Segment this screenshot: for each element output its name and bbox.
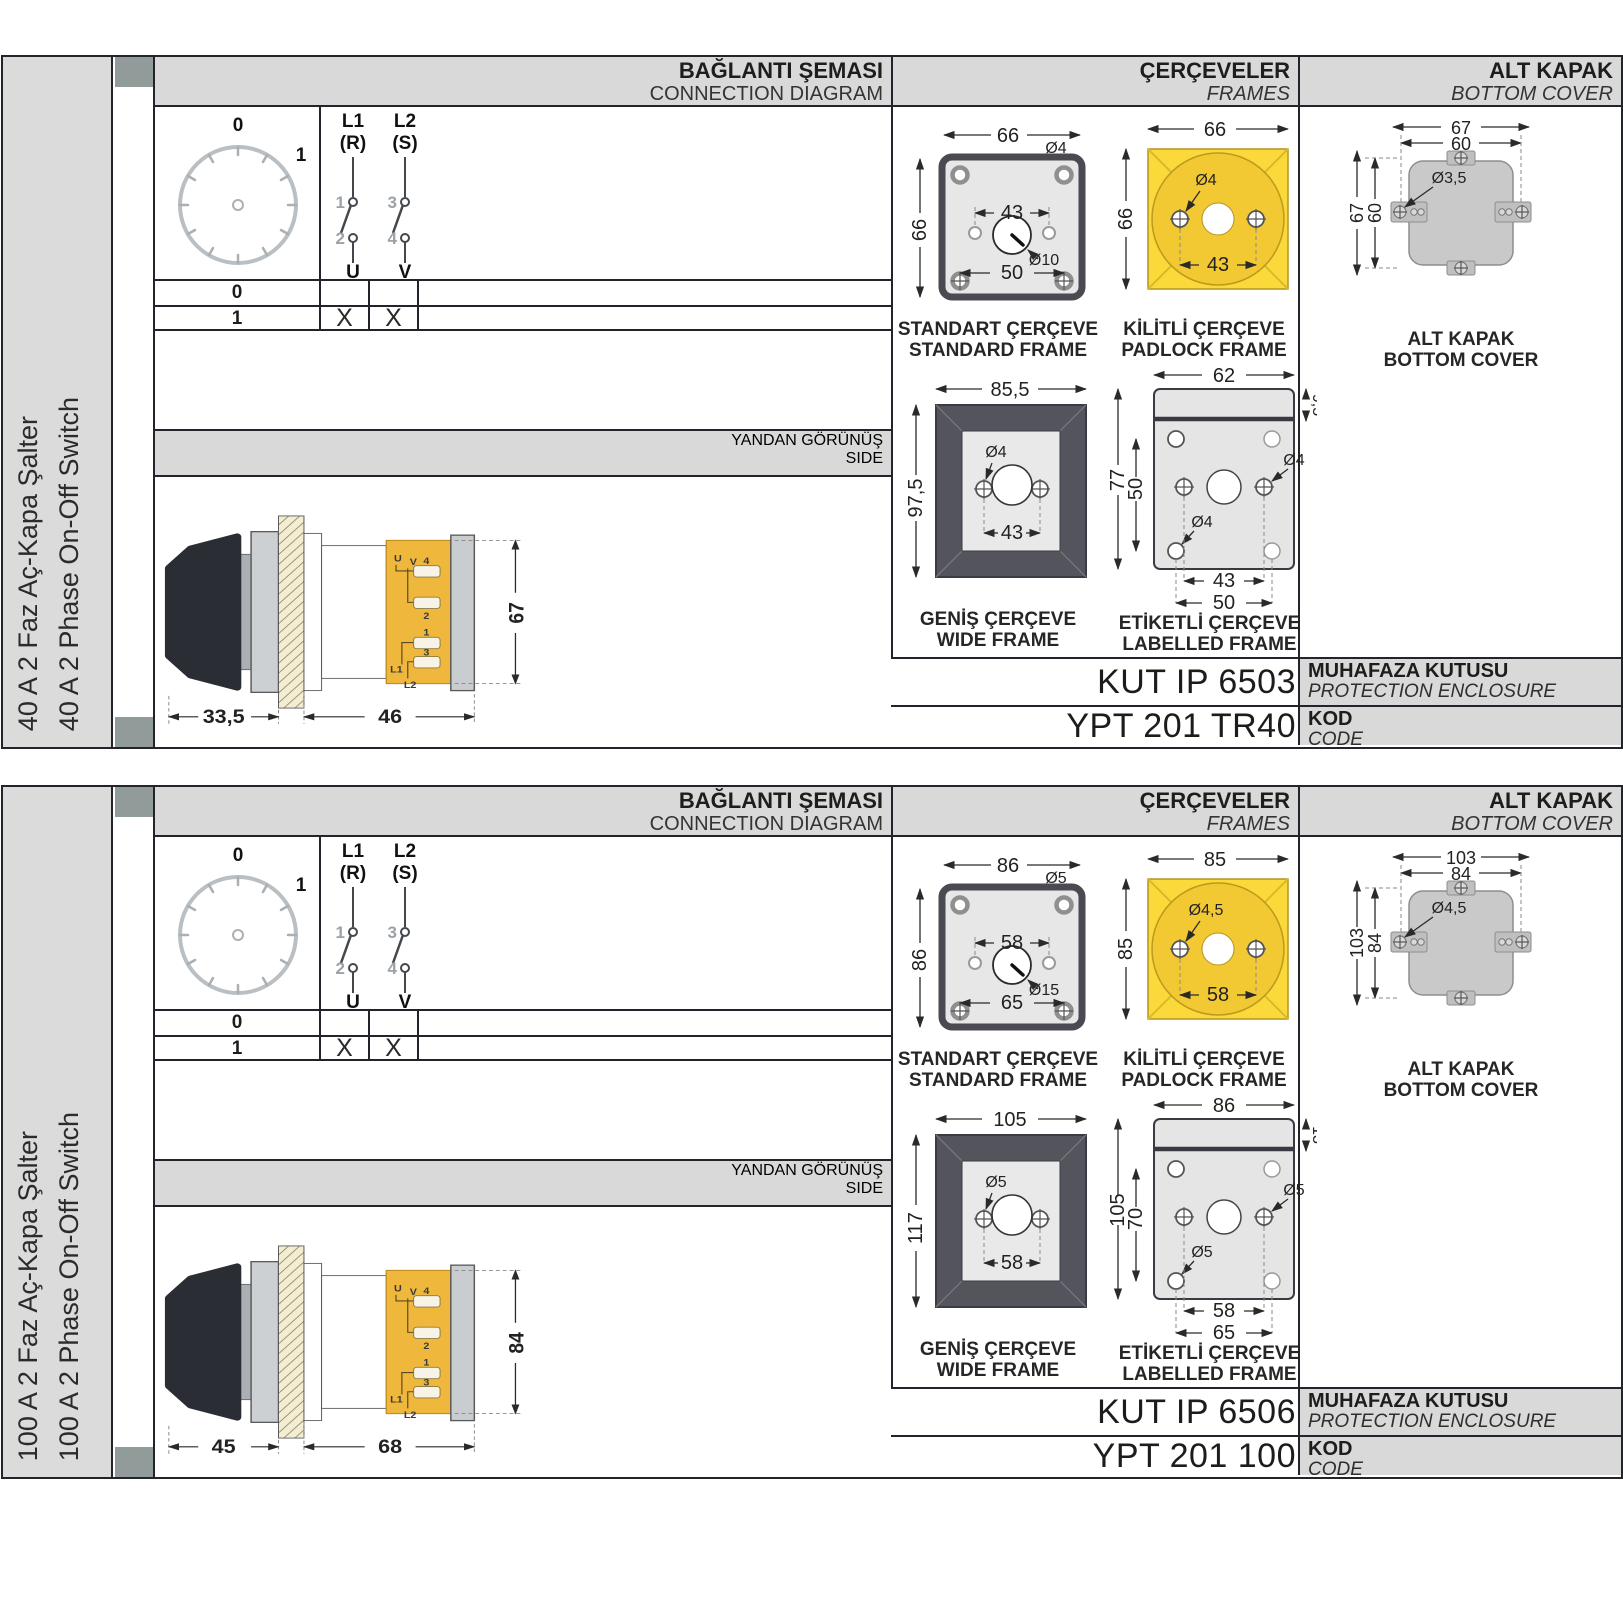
rotary-dial-drawing: 0 1 (155, 837, 319, 1009)
enclosure-label: MUHAFAZA KUTUSU PROTECTION ENCLOSURE (1298, 659, 1621, 705)
pole1-phase-label: (R) (340, 863, 366, 884)
padlock-frame-caption-tr: KİLİTLİ ÇERÇEVE (1102, 1049, 1306, 1070)
product-label-strip: 100 A 2 Faz Aç-Kapa Şalter 100 A 2 Phase… (3, 787, 113, 1477)
padlock-frame-caption-tr: KİLİTLİ ÇERÇEVE (1102, 319, 1306, 340)
switch-body-shapes: U V 4 2 1 3 L1 L2 (169, 1246, 475, 1438)
dim-frame-height: 117 (905, 1212, 927, 1244)
dim-hole: Ø4 (1195, 172, 1216, 189)
handle (169, 537, 238, 687)
spine-column (115, 57, 155, 747)
standard-frame-drawing: 66 Ø4 66 43 Ø10 (896, 113, 1100, 318)
enclosure-label-en: PROTECTION ENCLOSURE (1308, 1412, 1621, 1432)
product-name-turkish: 40 A 2 Faz Aç-Kapa Şalter (15, 416, 42, 731)
labelled-frame-caption-tr: ETİKETLİ ÇERÇEVE (1102, 613, 1317, 634)
dial-position-1: 1 (296, 875, 307, 896)
row-v-mark: X (370, 307, 419, 329)
standard-frame-caption-tr: STANDART ÇERÇEVE (896, 319, 1100, 340)
dim-label-strip: 13 (1309, 1126, 1317, 1144)
header-connection-diagram: BAĞLANTI ŞEMASI CONNECTION DIAGRAM (155, 787, 891, 837)
terminal-label-u: U (394, 554, 402, 564)
dim-body-depth: 68 (378, 1437, 402, 1458)
bottom-cover-drawing: 67 60 67 60 (1341, 117, 1581, 327)
table-row: 0 (155, 279, 891, 305)
catalog-page: 40 A 2 Faz Aç-Kapa Şalter 40 A 2 Phase O… (0, 0, 1623, 1623)
dim-outer-height: 103 (1347, 928, 1367, 958)
standard-frame-caption-en: STANDARD FRAME (896, 340, 1100, 361)
dial-position-0: 0 (233, 845, 244, 866)
dim-outer-spacing: 65 (1213, 1322, 1235, 1343)
switching-table: 0 1 X X (155, 279, 891, 331)
side-view-drawing: U V 4 2 1 3 L1 L2 45 68 84 (161, 1211, 631, 1473)
code-label-tr: KOD (1308, 708, 1621, 730)
row-v-mark: X (370, 1037, 419, 1059)
header-bottom-cover: ALT KAPAK BOTTOM COVER (1298, 57, 1621, 107)
dial-diagram-cell: 0 1 (155, 107, 321, 279)
frame-shape (1154, 389, 1294, 569)
contact-3-label: 3 (388, 193, 397, 212)
terminal-label-v: V (410, 1287, 417, 1297)
header-frames-tr: ÇERÇEVELER (893, 59, 1290, 83)
pole2-line-label: L2 (394, 841, 416, 862)
standard-frame-caption-en: STANDARD FRAME (896, 1070, 1100, 1091)
row-v-mark (370, 1011, 419, 1035)
dial-face (180, 147, 296, 263)
standard-frame-caption: STANDART ÇERÇEVE STANDARD FRAME (896, 319, 1100, 361)
terminal-label-1: 1 (423, 628, 429, 638)
dim-hole: Ø4,5 (1189, 902, 1224, 919)
frame-shape (936, 1135, 1086, 1307)
spine-marker-bottom (115, 1447, 153, 1477)
pole1-phase-label: (R) (340, 133, 366, 154)
header-side-view: YANDAN GÖRÜNÜŞ SIDE (155, 1159, 891, 1207)
header-bottom-cover-tr: ALT KAPAK (1300, 789, 1613, 813)
switch-contacts-cell: L1 (R) L2 (S) 1 2 3 4 U V (321, 107, 891, 279)
bottom-cover-drawing: 103 84 103 84 (1341, 847, 1581, 1057)
switch-body-shapes: U V 4 2 1 3 L1 L2 (169, 516, 475, 708)
divider-connection-frames (891, 107, 893, 657)
header-connection-tr: BAĞLANTI ŞEMASI (155, 59, 883, 83)
terminal-v-label: V (399, 262, 412, 279)
dim-frame-height: 66 (909, 219, 931, 241)
dim-hole: Ø4 (985, 444, 1006, 461)
code-label-tr: KOD (1308, 1438, 1621, 1460)
enclosure-value: KUT IP 6503 (891, 659, 1298, 705)
dim-body-height: 67 (505, 602, 528, 623)
switching-table: 0 1 X X (155, 1009, 891, 1061)
shaft-housing (322, 1276, 387, 1409)
row-position: 0 (155, 281, 321, 305)
bottom-cover-caption: ALT KAPAK BOTTOM COVER (1341, 1059, 1581, 1101)
standard-frame-drawing: 86 Ø5 86 58 Ø15 (896, 843, 1100, 1048)
side-view-drawing: U V 4 2 1 3 L1 L2 33,5 46 67 (161, 481, 631, 743)
dim-inner-height: 70 (1125, 1208, 1147, 1230)
dim-outer-spacing: 65 (1001, 992, 1023, 1014)
rear-plate (451, 535, 475, 690)
wide-frame-caption-en: WIDE FRAME (896, 1360, 1100, 1381)
row-u-mark: X (321, 307, 370, 329)
wide-frame-caption: GENİŞ ÇERÇEVE WIDE FRAME (896, 1339, 1100, 1381)
terminal-label-v: V (410, 557, 417, 567)
dim-outer-height: 67 (1347, 203, 1367, 223)
wide-frame-caption: GENİŞ ÇERÇEVE WIDE FRAME (896, 609, 1100, 651)
dim-frame-width: 62 (1213, 365, 1235, 387)
enclosure-label-tr: MUHAFAZA KUTUSU (1308, 660, 1621, 682)
enclosure-row: KUT IP 6503 MUHAFAZA KUTUSU PROTECTION E… (891, 657, 1621, 705)
terminal-label-2: 2 (423, 1341, 429, 1351)
product-name-turkish: 100 A 2 Faz Aç-Kapa Şalter (15, 1131, 42, 1461)
wide-frame-drawing: 85,5 97,5 Ø4 43 (896, 375, 1100, 610)
pole2-phase-label: (S) (392, 863, 417, 884)
dim-frame-width: 85 (1204, 849, 1226, 871)
terminal-label-2: 2 (423, 611, 429, 621)
bottom-cover-caption-en: BOTTOM COVER (1341, 350, 1581, 371)
dim-body-height: 84 (505, 1332, 528, 1354)
frame-shape (936, 405, 1086, 577)
dim-handle-depth: 33,5 (203, 707, 245, 728)
dial-diagram-cell: 0 1 (155, 837, 321, 1009)
padlock-frame-caption-en: PADLOCK FRAME (1102, 1070, 1306, 1091)
row-v-mark (370, 281, 419, 305)
header-bottom-cover-en: BOTTOM COVER (1300, 83, 1613, 105)
contact-2-label: 2 (336, 959, 345, 978)
header-frames: ÇERÇEVELER FRAMES (891, 57, 1298, 107)
dim-frame-width: 86 (997, 855, 1019, 877)
dim-frame-width: 105 (993, 1109, 1026, 1131)
contact-4-label: 4 (388, 959, 398, 978)
enclosure-value: KUT IP 6506 (891, 1389, 1298, 1435)
dim-hole-left: Ø5 (1191, 1244, 1212, 1261)
bottom-cover-caption-en: BOTTOM COVER (1341, 1080, 1581, 1101)
header-connection-tr: BAĞLANTI ŞEMASI (155, 789, 883, 813)
contact-3-label: 3 (388, 923, 397, 942)
dim-frame-width: 66 (997, 125, 1019, 147)
spine-marker-top (115, 787, 153, 817)
spine-marker-bottom (115, 717, 153, 747)
terminal-label-3: 3 (423, 648, 429, 658)
mounting-panel (279, 516, 304, 708)
handle (169, 1267, 238, 1417)
header-frames-en: FRAMES (893, 813, 1290, 835)
terminal-label-l2: L2 (404, 1410, 417, 1420)
switch-contacts-drawing: L1 (R) L2 (S) 1 2 3 4 U V (321, 107, 891, 279)
dim-hole-spacing: 58 (1001, 932, 1023, 954)
row-u-mark (321, 1011, 370, 1035)
pole1-line-label: L1 (342, 841, 365, 862)
dim-frame-width: 85,5 (991, 379, 1030, 401)
standard-frame-caption: STANDART ÇERÇEVE STANDARD FRAME (896, 1049, 1100, 1091)
divider-connection-frames (891, 837, 893, 1387)
wide-frame-drawing: 105 117 Ø5 58 (896, 1105, 1100, 1340)
contact-1-label: 1 (336, 193, 345, 212)
side-view-title-tr: YANDAN GÖRÜNÜŞ (155, 432, 883, 450)
spacer (304, 1263, 322, 1420)
dial-face (180, 877, 296, 993)
pole2-phase-label: (S) (392, 133, 417, 154)
code-label: KOD CODE (1298, 707, 1621, 745)
enclosure-label-tr: MUHAFAZA KUTUSU (1308, 1390, 1621, 1412)
row-position: 0 (155, 1011, 321, 1035)
dim-hole-right: Ø5 (1283, 1182, 1304, 1199)
dim-inner-height: 60 (1365, 203, 1385, 223)
spine-marker-top (115, 57, 153, 87)
front-plate (251, 1262, 278, 1423)
dim-hole-spacing: 58 (1207, 984, 1229, 1006)
product-label-strip: 40 A 2 Faz Aç-Kapa Şalter 40 A 2 Phase O… (3, 57, 113, 747)
header-connection-en: CONNECTION DIAGRAM (155, 83, 883, 105)
spine-column (115, 787, 155, 1477)
terminal-u-label: U (346, 992, 360, 1009)
code-value: YPT 201 100 (891, 1437, 1298, 1475)
dim-frame-width: 66 (1204, 119, 1226, 141)
dim-hole: Ø4,5 (1432, 900, 1467, 917)
row-u-mark (321, 281, 370, 305)
side-view-title-tr: YANDAN GÖRÜNÜŞ (155, 1162, 883, 1180)
rear-plate (451, 1265, 475, 1420)
padlock-frame-caption: KİLİTLİ ÇERÇEVE PADLOCK FRAME (1102, 319, 1306, 361)
product-section: 40 A 2 Faz Aç-Kapa Şalter 40 A 2 Phase O… (1, 55, 1623, 749)
enclosure-label: MUHAFAZA KUTUSU PROTECTION ENCLOSURE (1298, 1389, 1621, 1435)
spacer (304, 533, 322, 690)
row-position: 1 (155, 307, 321, 329)
dim-outer-spacing: 50 (1213, 592, 1235, 613)
dim-hole: Ø3,5 (1432, 170, 1467, 187)
dim-label-strip: 9,5 (1309, 394, 1317, 416)
code-row: YPT 201 TR40 KOD CODE (891, 705, 1621, 745)
terminal-label-1: 1 (423, 1358, 429, 1368)
header-frames-tr: ÇERÇEVELER (893, 789, 1290, 813)
terminal-label-u: U (394, 1284, 402, 1294)
dim-body-depth: 46 (378, 707, 402, 728)
header-frames: ÇERÇEVELER FRAMES (891, 787, 1298, 837)
mounting-panel (279, 1246, 304, 1438)
product-name-english: 40 A 2 Phase On-Off Switch (56, 397, 83, 731)
dim-hole-spacing: 43 (1001, 202, 1023, 224)
table-row: 1 X X (155, 1035, 891, 1061)
dim-hole-spacing: 43 (1207, 254, 1229, 276)
dim-frame-height: 66 (1115, 208, 1137, 230)
header-connection-en: CONNECTION DIAGRAM (155, 813, 883, 835)
dim-hole-spacing: 43 (1001, 522, 1023, 544)
labelled-frame-caption-en: LABELLED FRAME (1102, 634, 1317, 655)
bottom-cover-caption-tr: ALT KAPAK (1341, 1059, 1581, 1080)
header-bottom-cover-tr: ALT KAPAK (1300, 59, 1613, 83)
padlock-frame-drawing: 85 85 Ø4,5 58 (1102, 843, 1306, 1048)
contact-2-label: 2 (336, 229, 345, 248)
dim-inner-height: 84 (1365, 933, 1385, 953)
header-connection-diagram: BAĞLANTI ŞEMASI CONNECTION DIAGRAM (155, 57, 891, 107)
switch-contacts-drawing: L1 (R) L2 (S) 1 2 3 4 U V (321, 837, 891, 1009)
labelled-frame-caption: ETİKETLİ ÇERÇEVE LABELLED FRAME (1102, 1343, 1317, 1385)
code-row: YPT 201 100 KOD CODE (891, 1435, 1621, 1475)
dim-frame-height: 86 (909, 949, 931, 971)
product-name-english: 100 A 2 Phase On-Off Switch (56, 1112, 83, 1461)
terminal-label-3: 3 (423, 1378, 429, 1388)
table-row: 1 X X (155, 305, 891, 331)
labelled-frame-caption: ETİKETLİ ÇERÇEVE LABELLED FRAME (1102, 613, 1317, 655)
enclosure-label-en: PROTECTION ENCLOSURE (1308, 682, 1621, 702)
dim-hole-right: Ø4 (1283, 452, 1304, 469)
switch-contacts-cell: L1 (R) L2 (S) 1 2 3 4 U V (321, 837, 891, 1009)
row-u-mark: X (321, 1037, 370, 1059)
padlock-frame-caption: KİLİTLİ ÇERÇEVE PADLOCK FRAME (1102, 1049, 1306, 1091)
wide-frame-caption-tr: GENİŞ ÇERÇEVE (896, 1339, 1100, 1360)
header-frames-en: FRAMES (893, 83, 1290, 105)
standard-frame-caption-tr: STANDART ÇERÇEVE (896, 1049, 1100, 1070)
code-label-en: CODE (1308, 1460, 1621, 1480)
dim-outer-spacing: 50 (1001, 262, 1023, 284)
terminal-label-l1: L1 (390, 1395, 403, 1405)
header-bottom-cover-en: BOTTOM COVER (1300, 813, 1613, 835)
wide-frame-caption-en: WIDE FRAME (896, 630, 1100, 651)
dim-hole: Ø5 (985, 1174, 1006, 1191)
row-position: 1 (155, 1037, 321, 1059)
rotary-dial-drawing: 0 1 (155, 107, 319, 279)
contact-4-label: 4 (388, 229, 398, 248)
enclosure-row: KUT IP 6506 MUHAFAZA KUTUSU PROTECTION E… (891, 1387, 1621, 1435)
wide-frame-caption-tr: GENİŞ ÇERÇEVE (896, 609, 1100, 630)
code-label-en: CODE (1308, 730, 1621, 750)
dim-inner-spacing: 43 (1213, 570, 1235, 592)
labelled-frame-caption-tr: ETİKETLİ ÇERÇEVE (1102, 1343, 1317, 1364)
terminal-label-l1: L1 (390, 665, 403, 675)
dim-inner-height: 50 (1125, 478, 1147, 500)
product-section: 100 A 2 Faz Aç-Kapa Şalter 100 A 2 Phase… (1, 785, 1623, 1479)
header-bottom-cover: ALT KAPAK BOTTOM COVER (1298, 787, 1621, 837)
dim-handle-depth: 45 (212, 1437, 236, 1458)
labelled-frame-drawing: 62 9,5 77 50 Ø4 Ø4 (1102, 365, 1317, 613)
terminal-label-4: 4 (423, 556, 429, 566)
dim-hole-spacing: 58 (1001, 1252, 1023, 1274)
dim-frame-height: 85 (1115, 938, 1137, 960)
terminal-label-l2: L2 (404, 680, 417, 690)
dim-frame-width: 86 (1213, 1095, 1235, 1117)
front-plate (251, 532, 278, 693)
terminal-v-label: V (399, 992, 412, 1009)
frame-shape (1154, 1119, 1294, 1299)
code-label: KOD CODE (1298, 1437, 1621, 1475)
pole2-line-label: L2 (394, 111, 416, 132)
table-row: 0 (155, 1009, 891, 1035)
padlock-frame-caption-en: PADLOCK FRAME (1102, 340, 1306, 361)
bottom-cover-caption: ALT KAPAK BOTTOM COVER (1341, 329, 1581, 371)
terminal-u-label: U (346, 262, 360, 279)
dim-hole-left: Ø4 (1191, 514, 1212, 531)
dial-position-1: 1 (296, 145, 307, 166)
code-value: YPT 201 TR40 (891, 707, 1298, 745)
labelled-frame-drawing: 86 13 105 70 Ø5 Ø5 (1102, 1095, 1317, 1343)
dial-position-0: 0 (233, 115, 244, 136)
shaft-housing (322, 546, 387, 679)
terminal-label-4: 4 (423, 1286, 429, 1296)
labelled-frame-caption-en: LABELLED FRAME (1102, 1364, 1317, 1385)
dim-frame-height: 97,5 (905, 479, 927, 518)
padlock-frame-drawing: 66 66 Ø4 43 (1102, 113, 1306, 318)
dim-inner-spacing: 58 (1213, 1300, 1235, 1322)
pole1-line-label: L1 (342, 111, 365, 132)
side-view-title-en: SIDE (155, 1180, 883, 1198)
contact-1-label: 1 (336, 923, 345, 942)
bottom-cover-caption-tr: ALT KAPAK (1341, 329, 1581, 350)
side-view-title-en: SIDE (155, 450, 883, 468)
header-side-view: YANDAN GÖRÜNÜŞ SIDE (155, 429, 891, 477)
